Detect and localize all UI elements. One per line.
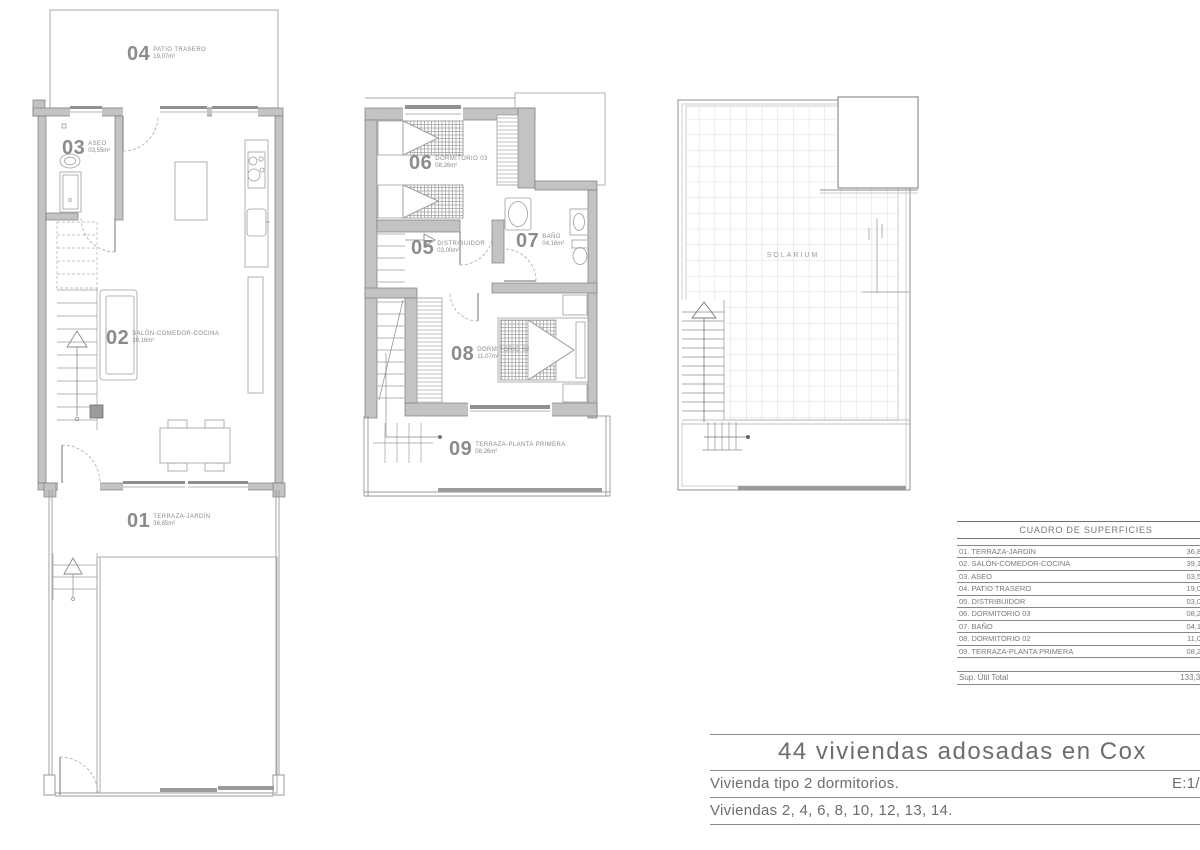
ground-floor-plan <box>30 0 300 810</box>
bathtub <box>505 198 531 230</box>
main-staircase <box>57 222 103 430</box>
surface-row-value: 03,00m² <box>1186 598 1200 606</box>
room-area: 08,26m² <box>435 163 487 171</box>
surface-row: 08. DORMITORIO 02 11,07m² <box>957 633 1200 646</box>
room-label-terraza-jardin: 01 TERRAZA-JARDÍN 36,85m² <box>127 511 211 531</box>
terrace-access-door <box>62 445 100 483</box>
toilet <box>572 240 588 265</box>
room-name: SALÓN-COMEDOR-COCINA <box>132 331 219 339</box>
kitchen-counter <box>245 140 270 393</box>
surface-table-rows: 01. TERRAZA-JARDÍN 36,85m² 02. SALÓN-COM… <box>957 545 1200 659</box>
dwelling-numbers-row: Viviendas 2, 4, 6, 8, 10, 12, 13, 14. <box>710 798 1200 825</box>
room-number: 01 <box>127 511 150 531</box>
surface-row-value: 39,16m² <box>1186 560 1200 568</box>
room-label-dormitorio-02: 08 DORMITORIO 02 11,07m² <box>451 344 530 364</box>
surface-row-label: 03. ASEO <box>959 573 992 581</box>
surface-row: 03. ASEO 03,55m² <box>957 571 1200 584</box>
dwelling-numbers: Viviendas 2, 4, 6, 8, 10, 12, 13, 14. <box>710 802 953 819</box>
dwelling-type: Vivienda tipo 2 dormitorios. <box>710 775 899 792</box>
surface-table: CUADRO DE SUPERFICIES 01. TERRAZA-JARDÍN… <box>957 521 1200 685</box>
surface-row: 07. BAÑO 04,16m² <box>957 621 1200 634</box>
terraza-jardin-boundary <box>44 490 284 796</box>
room-number: 08 <box>451 344 474 364</box>
room-area: 19,07m² <box>153 54 206 62</box>
surface-total-row: Sup. Útil Total 133,38m² <box>957 671 1200 685</box>
room-label-salon-comedor-cocina: 02 SALÓN-COMEDOR-COCINA 39,16m² <box>106 328 219 348</box>
room-number: 02 <box>106 328 129 348</box>
solarium-label: SOLARIUM <box>767 252 820 259</box>
surface-table-title: CUADRO DE SUPERFICIES <box>957 521 1200 539</box>
room-area: 03,00m² <box>437 248 485 256</box>
aseo-door <box>81 218 115 252</box>
surface-row: 02. SALÓN-COMEDOR-COCINA 39,16m² <box>957 558 1200 571</box>
wardrobe-dorm02 <box>417 298 442 403</box>
surface-row: 06. DORMITORIO 03 08,26m² <box>957 608 1200 621</box>
room-area: 11,07m² <box>477 354 529 362</box>
dormitorio02-door <box>450 293 478 321</box>
garden-gate-door <box>60 757 98 795</box>
surface-row: 04. PATIO TRASERO 19,07m² <box>957 583 1200 596</box>
surface-row: 01. TERRAZA-JARDÍN 36,85m² <box>957 546 1200 559</box>
surface-row-value: 03,55m² <box>1186 573 1200 581</box>
drawing-scale: E:1/7 <box>1172 775 1200 792</box>
ground-walls <box>33 100 285 497</box>
room-name: PATIO TRASERO <box>153 47 206 55</box>
single-bed-2 <box>378 185 463 218</box>
single-bed-1 <box>378 121 463 155</box>
terrace-stairs <box>53 553 97 601</box>
room-label-distribuidor: 05 DISTRIBUIDOR 03,00m² <box>411 238 485 258</box>
bathroom-sink <box>570 209 588 235</box>
surface-row: 05. DISTRIBUIDOR 03,00m² <box>957 596 1200 609</box>
surface-total-label: Sup. Útil Total <box>959 674 1008 682</box>
room-number: 07 <box>516 231 539 251</box>
room-label-aseo: 03 ASEO 03,55m² <box>62 138 110 158</box>
surface-row-label: 08. DORMITORIO 02 <box>959 635 1031 643</box>
project-title: 44 viviendas adosadas en Cox <box>710 734 1200 771</box>
dwelling-type-row: Vivienda tipo 2 dormitorios. E:1/7 <box>710 771 1200 798</box>
surface-row-value: 08,26m² <box>1186 610 1200 618</box>
roof-plan: SOLARIUM <box>668 88 926 500</box>
room-area: 36,85m² <box>153 521 210 529</box>
surface-row-label: 02. SALÓN-COMEDOR-COCINA <box>959 560 1070 568</box>
room-number: 05 <box>411 238 434 258</box>
surface-row-label: 05. DISTRIBUIDOR <box>959 598 1025 606</box>
room-area: 39,16m² <box>132 338 219 346</box>
surface-row-label: 07. BAÑO <box>959 623 993 631</box>
room-number: 04 <box>127 44 150 64</box>
room-label-dormitorio-03: 06 DORMITORIO 03 08,26m² <box>409 153 488 173</box>
dining-table <box>160 420 230 471</box>
surface-row-value: 11,07m² <box>1187 635 1200 643</box>
room-label-terraza-planta-primera: 09 TERRAZA-PLANTA PRIMERA 08,26m² <box>449 439 566 459</box>
garden-bottom-windows <box>160 786 274 792</box>
surface-row-value: 19,07m² <box>1186 585 1200 593</box>
surface-row: 09. TERRAZA-PLANTA PRIMERA 08,26m² <box>957 646 1200 659</box>
title-block: 44 viviendas adosadas en Cox Vivienda ti… <box>710 734 1200 825</box>
plan-sheet: { "plans": { "ground_floor": { "rooms": … <box>0 0 1200 850</box>
room-label-bano: 07 BAÑO 04,16m² <box>516 231 564 251</box>
room-name: BAÑO <box>542 234 564 242</box>
room-name: TERRAZA-PLANTA PRIMERA <box>475 442 565 450</box>
room-name: DISTRIBUIDOR <box>437 241 485 249</box>
entry-door <box>123 116 158 151</box>
room-name: ASEO <box>88 141 110 149</box>
garden-inner-area <box>97 557 277 793</box>
room-number: 03 <box>62 138 85 158</box>
surface-row-label: 06. DORMITORIO 03 <box>959 610 1031 618</box>
kitchen-island <box>175 162 207 220</box>
room-area: 08,26m² <box>475 449 565 457</box>
wardrobe-dorm03 <box>497 115 518 185</box>
bathroom-door <box>504 249 536 281</box>
surface-row-value: 04,16m² <box>1186 623 1200 631</box>
room-area: 04,16m² <box>542 241 564 249</box>
room-number: 09 <box>449 439 472 459</box>
surface-row-value: 08,26m² <box>1186 648 1200 656</box>
surface-row-value: 36,85m² <box>1186 548 1200 556</box>
surface-row-label: 04. PATIO TRASERO <box>959 585 1031 593</box>
room-name: TERRAZA-JARDÍN <box>153 514 210 522</box>
room-number: 06 <box>409 153 432 173</box>
surface-row-label: 09. TERRAZA-PLANTA PRIMERA <box>959 648 1073 656</box>
room-name: DORMITORIO 03 <box>435 156 487 164</box>
room-area: 03,55m² <box>88 148 110 156</box>
room-name: DORMITORIO 02 <box>477 347 529 355</box>
room-label-patio-trasero: 04 PATIO TRASERO 19,07m² <box>127 44 206 64</box>
surface-total-value: 133,38m² <box>1180 674 1200 682</box>
surface-row-label: 01. TERRAZA-JARDÍN <box>959 548 1036 556</box>
